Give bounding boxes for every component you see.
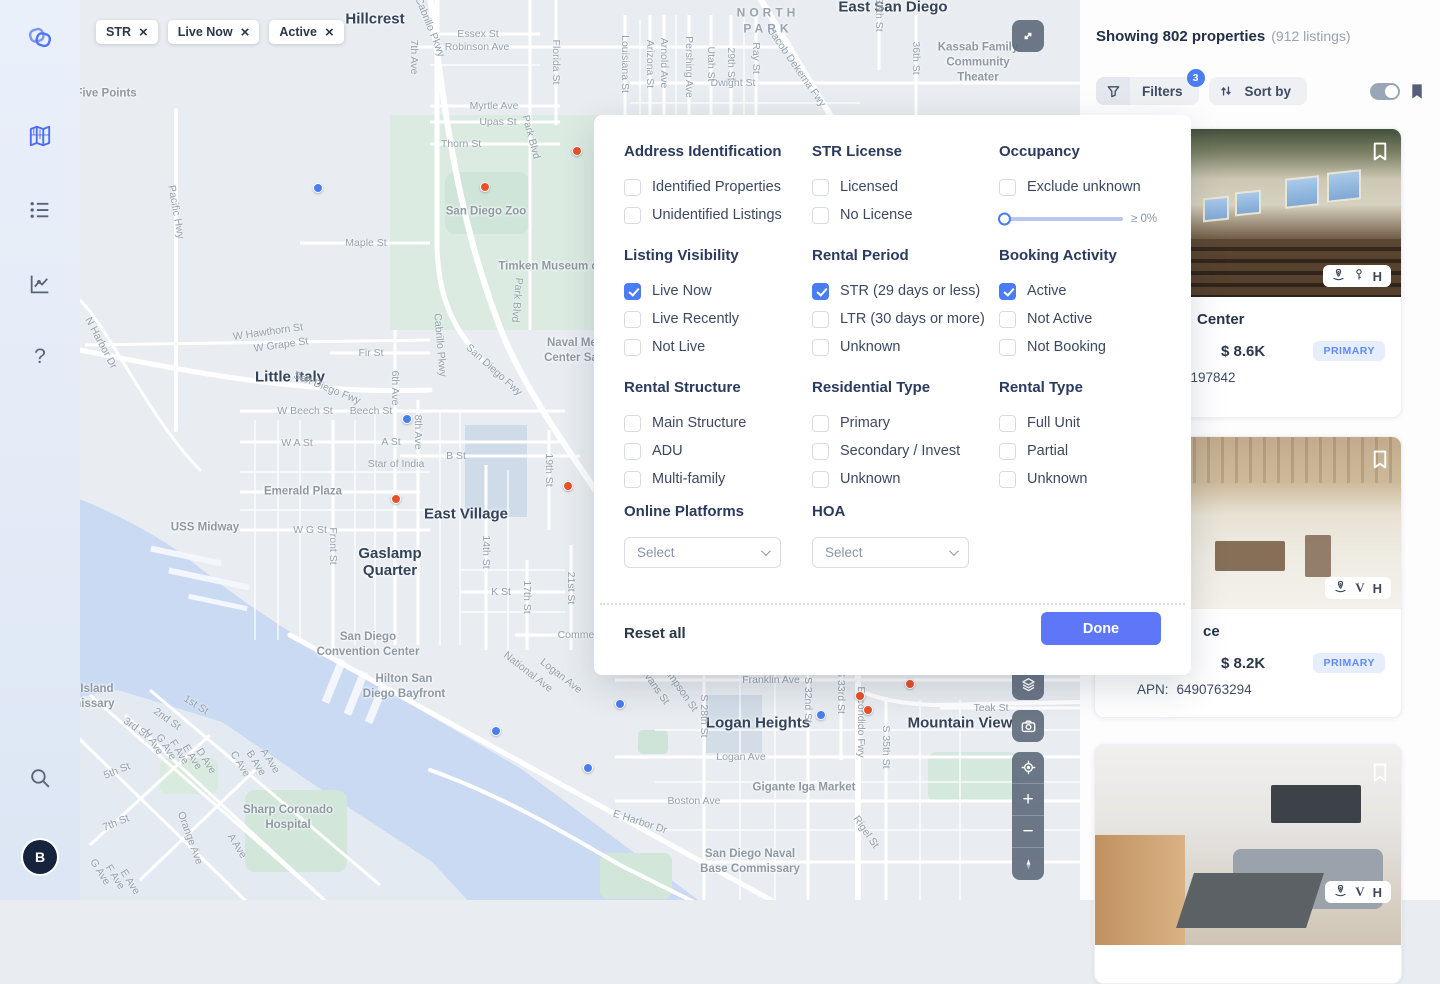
checkbox-label: Partial — [1027, 443, 1068, 459]
filter-group-occupancy: Occupancy Exclude unknown ≥ 0% — [999, 143, 1184, 228]
checkbox[interactable] — [812, 339, 829, 356]
sidebar-item-help[interactable]: ? — [34, 345, 46, 369]
filter-checkbox-str-29-days-or-less[interactable]: STR (29 days or less) — [812, 277, 997, 305]
airbnb-icon — [1334, 580, 1347, 596]
sort-label: Sort by — [1243, 84, 1308, 99]
locate-button[interactable] — [1012, 752, 1044, 784]
orange-property-marker[interactable] — [572, 146, 582, 156]
close-icon[interactable]: × — [139, 27, 148, 38]
homes-icon: H — [1373, 885, 1382, 900]
checkbox[interactable] — [624, 311, 641, 328]
filter-group-rental-type: Rental TypeFull UnitPartialUnknown — [999, 379, 1184, 493]
checkbox-label: Licensed — [840, 179, 898, 195]
checkbox[interactable] — [812, 443, 829, 460]
homes-icon: H — [1373, 581, 1382, 596]
hoa-select-group: HOA Select — [812, 503, 997, 568]
results-toolbar: Filters 3 Sort by — [1096, 77, 1424, 105]
results-count: Showing 802 properties(912 listings) — [1096, 28, 1351, 45]
sidebar: ? B — [0, 0, 80, 900]
close-icon[interactable]: × — [241, 27, 250, 38]
filter-group-str-license: STR LicenseLicensedNo License — [812, 143, 997, 229]
filter-checkbox-not-active[interactable]: Not Active — [999, 305, 1184, 333]
showing-text: Showing 802 properties — [1096, 28, 1265, 45]
photo-detail — [1305, 535, 1331, 577]
chip-label: Live Now — [178, 25, 233, 39]
sidebar-item-list[interactable] — [28, 198, 53, 223]
filter-group-rental-period: Rental PeriodSTR (29 days or less)LTR (3… — [812, 247, 997, 361]
map-sync-toggle[interactable] — [1370, 83, 1400, 100]
section-title: Listing Visibility — [624, 247, 809, 269]
blue-property-marker[interactable] — [491, 726, 501, 736]
sidebar-item-analytics[interactable] — [28, 272, 53, 297]
filter-checkbox-partial[interactable]: Partial — [999, 437, 1184, 465]
photo-detail — [1327, 169, 1361, 203]
checkbox[interactable] — [812, 179, 829, 196]
primary-badge: PRIMARY — [1313, 653, 1385, 673]
apn-value: 6490763294 — [1177, 682, 1252, 697]
zoom-out-button[interactable]: − — [1012, 816, 1044, 848]
filter-checkbox-active[interactable]: Active — [999, 277, 1184, 305]
occupancy-slider-row: ≥ 0% — [999, 210, 1184, 228]
property-photo: VH — [1095, 745, 1401, 945]
homes-icon: H — [1373, 269, 1382, 284]
close-icon[interactable]: × — [325, 27, 334, 38]
blue-property-marker[interactable] — [615, 699, 625, 709]
select-value: Select — [825, 545, 949, 560]
checkbox[interactable] — [812, 311, 829, 328]
checkbox-label: Multi-family — [652, 471, 725, 487]
checkbox-label: Unknown — [1027, 471, 1087, 487]
filter-group-booking-activity: Booking ActivityActiveNot ActiveNot Book… — [999, 247, 1184, 361]
platform-pill: VH — [1325, 577, 1391, 599]
airbnb-icon — [1334, 884, 1347, 900]
filter-checkbox-no-license[interactable]: No License — [812, 201, 997, 229]
checkbox[interactable] — [812, 471, 829, 488]
filter-checkbox-not-booking[interactable]: Not Booking — [999, 333, 1184, 361]
sidebar-item-map[interactable] — [27, 123, 53, 149]
section-title: HOA — [812, 503, 997, 525]
chevron-down-icon — [949, 546, 959, 556]
section-title: Online Platforms — [624, 503, 809, 525]
vrbo-icon: V — [1355, 884, 1364, 900]
card-bookmark-icon[interactable] — [1372, 763, 1388, 787]
online-platforms-select-group: Online Platforms Select — [624, 503, 809, 568]
blue-property-marker[interactable] — [313, 183, 323, 193]
checkbox[interactable] — [999, 339, 1016, 356]
filter-checkbox-not-live[interactable]: Not Live — [624, 333, 809, 361]
card-bookmark-icon[interactable] — [1372, 142, 1388, 166]
slider-thumb[interactable] — [998, 213, 1011, 226]
photo-detail — [1285, 175, 1319, 209]
map-expand-button[interactable] — [1012, 20, 1044, 52]
compass-button[interactable] — [1012, 848, 1044, 880]
filter-checkbox-exclude-unknown[interactable]: Exclude unknown — [999, 173, 1184, 201]
checkbox[interactable] — [624, 443, 641, 460]
photo-detail — [1215, 541, 1285, 571]
photo-detail — [1203, 196, 1229, 223]
section-title: Address Identification — [624, 143, 809, 165]
photo-detail — [1176, 873, 1324, 928]
panel-divider — [600, 603, 1185, 605]
checkbox-label: Unidentified Listings — [652, 207, 782, 223]
checkbox-label: STR (29 days or less) — [840, 283, 980, 299]
checkbox[interactable] — [812, 207, 829, 224]
section-title: STR License — [812, 143, 997, 165]
filter-checkbox-adu[interactable]: ADU — [624, 437, 809, 465]
chip-label: STR — [106, 25, 131, 39]
filter-checkbox-unknown[interactable]: Unknown — [812, 333, 997, 361]
checkbox-label: ADU — [652, 443, 683, 459]
checkbox-label: Live Recently — [652, 311, 739, 327]
filters-badge: 3 — [1187, 69, 1205, 87]
checkbox[interactable] — [999, 415, 1016, 432]
checkbox-label: Not Booking — [1027, 339, 1106, 355]
filter-group-address-identification: Address IdentificationIdentified Propert… — [624, 143, 809, 229]
filter-checkbox-identified-properties[interactable]: Identified Properties — [624, 173, 809, 201]
card-price: $ 8.6K — [1221, 343, 1265, 360]
checkbox[interactable] — [624, 415, 641, 432]
blue-property-marker[interactable] — [402, 414, 412, 424]
airbnb-icon — [1332, 268, 1345, 284]
key-icon — [1353, 268, 1365, 284]
section-title: Rental Type — [999, 379, 1184, 401]
sort-arrows-icon — [1209, 77, 1243, 105]
checkbox-label: No License — [840, 207, 913, 223]
apn-value: 197842 — [1191, 370, 1236, 385]
checkbox[interactable] — [999, 443, 1016, 460]
online-platforms-select[interactable]: Select — [624, 537, 781, 568]
vrbo-icon: V — [1355, 580, 1364, 596]
filter-checkbox-full-unit[interactable]: Full Unit — [999, 409, 1184, 437]
filter-checkbox-main-structure[interactable]: Main Structure — [624, 409, 809, 437]
filters-panel: Address IdentificationIdentified Propert… — [594, 115, 1191, 675]
section-title: Residential Type — [812, 379, 997, 401]
sidebar-search-icon[interactable] — [28, 766, 53, 791]
checkbox-label: Unknown — [840, 471, 900, 487]
checkbox-label: Full Unit — [1027, 415, 1080, 431]
filters-label: Filters — [1130, 84, 1199, 99]
map-zoom-controls: + − — [1012, 752, 1044, 880]
checkbox-label: Not Active — [1027, 311, 1092, 327]
checkbox[interactable] — [812, 283, 829, 300]
filter-checkbox-primary[interactable]: Primary — [812, 409, 997, 437]
homes-icon: H — [1373, 269, 1382, 284]
checkbox-label: LTR (30 days or more) — [840, 311, 985, 327]
occupancy-slider[interactable] — [999, 217, 1123, 221]
filter-checkbox-secondary-invest[interactable]: Secondary / Invest — [812, 437, 997, 465]
filter-chip-str[interactable]: STR× — [96, 20, 158, 44]
listings-count: (912 listings) — [1271, 28, 1350, 44]
blue-property-marker[interactable] — [816, 710, 826, 720]
filter-checkbox-licensed[interactable]: Licensed — [812, 173, 997, 201]
blue-property-marker[interactable] — [583, 763, 593, 773]
filter-group-residential-type: Residential TypePrimarySecondary / Inves… — [812, 379, 997, 493]
primary-badge: PRIMARY — [1313, 341, 1385, 361]
checkbox[interactable] — [624, 207, 641, 224]
filter-checkbox-multi-family[interactable]: Multi-family — [624, 465, 809, 493]
hoa-select[interactable]: Select — [812, 537, 969, 568]
checkbox[interactable] — [999, 471, 1016, 488]
saved-bookmark-icon[interactable] — [1410, 83, 1424, 100]
section-title: Rental Structure — [624, 379, 809, 401]
filter-chip-live-now[interactable]: Live Now× — [168, 20, 260, 44]
photo-detail — [1095, 835, 1185, 945]
app-logo-icon[interactable] — [25, 23, 55, 53]
filter-group-listing-visibility: Listing VisibilityLive NowLive RecentlyN… — [624, 247, 809, 361]
checkbox[interactable] — [999, 179, 1016, 196]
select-value: Select — [637, 545, 761, 560]
filter-checkbox-unknown[interactable]: Unknown — [812, 465, 997, 493]
checkbox-label: Exclude unknown — [1027, 179, 1141, 195]
filters-button[interactable]: Filters 3 — [1096, 77, 1199, 105]
checkbox-label: Primary — [840, 415, 890, 431]
vrbo-icon: V — [1355, 580, 1364, 595]
reset-all-button[interactable]: Reset all — [624, 625, 686, 642]
orange-property-marker[interactable] — [905, 679, 915, 689]
checkbox-label: Identified Properties — [652, 179, 781, 195]
checkbox-label: Main Structure — [652, 415, 746, 431]
funnel-icon — [1096, 77, 1130, 105]
user-avatar[interactable]: B — [23, 840, 57, 874]
orange-property-marker[interactable] — [563, 481, 573, 491]
done-button[interactable]: Done — [1041, 612, 1161, 645]
card-price: $ 8.2K — [1221, 655, 1265, 672]
filter-chip-active[interactable]: Active× — [269, 20, 343, 44]
platform-pill: H — [1323, 265, 1391, 287]
checkbox-label: Not Live — [652, 339, 705, 355]
orange-property-marker[interactable] — [391, 494, 401, 504]
checkbox-label: Unknown — [840, 339, 900, 355]
section-title: Occupancy — [999, 143, 1184, 165]
photo-detail — [1271, 785, 1361, 823]
zoom-in-button[interactable]: + — [1012, 784, 1044, 816]
checkbox-label: Secondary / Invest — [840, 443, 960, 459]
chip-label: Active — [279, 25, 317, 39]
active-filter-chips: STR×Live Now×Active× — [96, 20, 344, 44]
checkbox[interactable] — [624, 179, 641, 196]
checkbox[interactable] — [812, 415, 829, 432]
filter-checkbox-unidentified-listings[interactable]: Unidentified Listings — [624, 201, 809, 229]
checkbox-label: Active — [1027, 283, 1067, 299]
homes-icon: H — [1373, 885, 1382, 900]
filter-checkbox-unknown[interactable]: Unknown — [999, 465, 1184, 493]
checkbox[interactable] — [999, 311, 1016, 328]
property-card[interactable]: VH — [1094, 744, 1402, 984]
section-title: Booking Activity — [999, 247, 1184, 269]
filter-checkbox-ltr-30-days-or-more[interactable]: LTR (30 days or more) — [812, 305, 997, 333]
orange-property-marker[interactable] — [480, 182, 490, 192]
card-bookmark-icon[interactable] — [1372, 450, 1388, 474]
checkbox[interactable] — [624, 471, 641, 488]
map-camera-button[interactable] — [1012, 710, 1044, 742]
chevron-down-icon — [761, 546, 771, 556]
photo-detail — [1235, 190, 1261, 217]
filter-checkbox-live-recently[interactable]: Live Recently — [624, 305, 809, 333]
apn-label: APN: — [1137, 682, 1169, 697]
checkbox[interactable] — [624, 339, 641, 356]
toggle-knob — [1385, 85, 1398, 98]
filter-group-rental-structure: Rental StructureMain StructureADUMulti-f… — [624, 379, 809, 493]
checkbox[interactable] — [999, 283, 1016, 300]
sort-by-button[interactable]: Sort by — [1209, 77, 1308, 105]
orange-property-marker[interactable] — [863, 705, 873, 715]
checkbox[interactable] — [624, 283, 641, 300]
checkbox-label: Live Now — [652, 283, 712, 299]
orange-property-marker[interactable] — [855, 691, 865, 701]
slider-value-label: ≥ 0% — [1131, 213, 1157, 225]
filter-checkbox-live-now[interactable]: Live Now — [624, 277, 809, 305]
section-title: Rental Period — [812, 247, 997, 269]
vrbo-icon: V — [1355, 884, 1364, 899]
homes-icon: H — [1373, 581, 1382, 596]
